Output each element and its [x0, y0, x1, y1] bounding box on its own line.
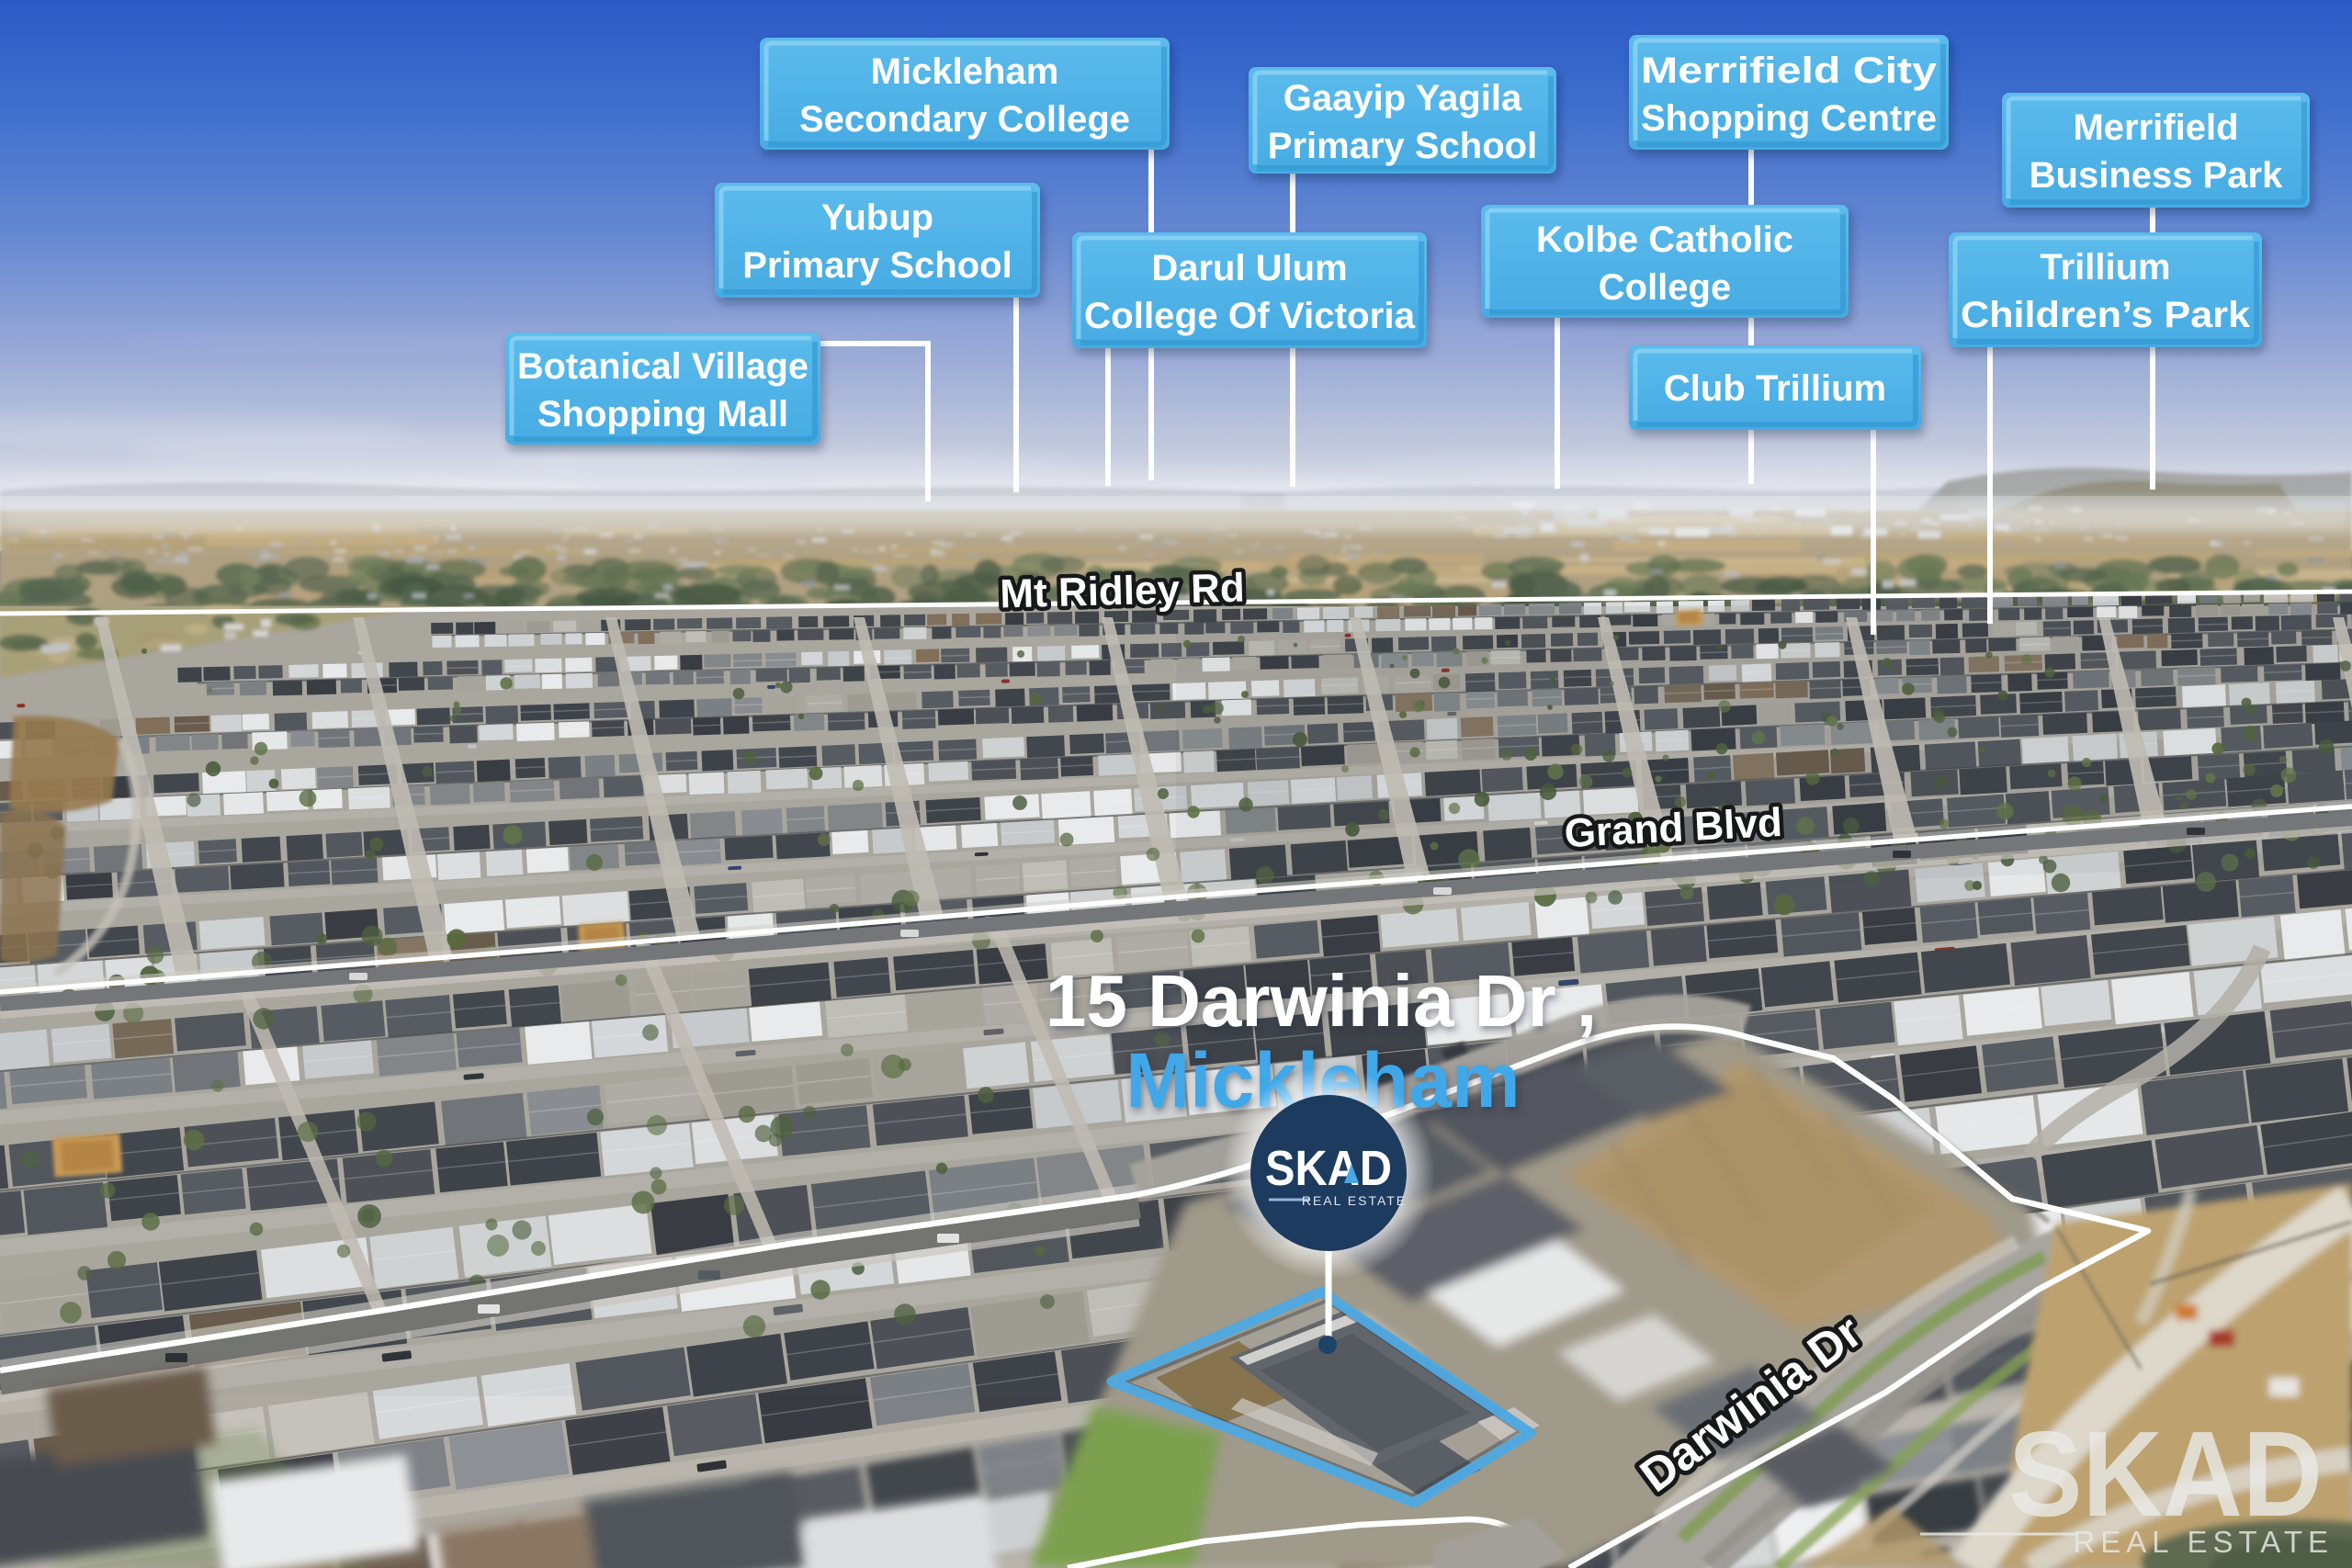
svg-text:College Of Victoria: College Of Victoria: [1084, 296, 1416, 336]
svg-text:Shopping Centre: Shopping Centre: [1641, 98, 1937, 139]
svg-text:Trillium: Trillium: [2040, 247, 2170, 288]
svg-text:Club Trillium: Club Trillium: [1664, 368, 1886, 409]
svg-text:SKAD: SKAD: [1265, 1141, 1392, 1196]
svg-text:Gaayip Yagila: Gaayip Yagila: [1283, 78, 1522, 118]
svg-text:Primary School: Primary School: [742, 245, 1012, 286]
svg-text:Mickleham: Mickleham: [871, 51, 1059, 92]
svg-text:Kolbe Catholic: Kolbe Catholic: [1536, 220, 1793, 260]
svg-text:Merrifield: Merrifield: [2073, 107, 2238, 148]
svg-text:Shopping Mall: Shopping Mall: [537, 394, 788, 434]
svg-text:15 Darwinia Dr ,: 15 Darwinia Dr ,: [1046, 960, 1597, 1042]
svg-text:Botanical Village: Botanical Village: [517, 346, 808, 387]
svg-text:Merrifield City: Merrifield City: [1641, 51, 1938, 91]
svg-text:Yubup: Yubup: [821, 197, 933, 238]
svg-text:Darul Ulum: Darul Ulum: [1151, 248, 1347, 288]
svg-text:SKAD: SKAD: [2008, 1406, 2323, 1541]
svg-text:Primary School: Primary School: [1268, 126, 1537, 166]
svg-text:Children’s Park: Children’s Park: [1961, 295, 2251, 335]
svg-text:REAL ESTATE: REAL ESTATE: [2073, 1525, 2334, 1559]
svg-text:REAL ESTATE: REAL ESTATE: [1302, 1193, 1407, 1208]
svg-text:Secondary College: Secondary College: [799, 99, 1130, 140]
svg-text:Mt Ridley Rd: Mt Ridley Rd: [1000, 566, 1246, 617]
svg-text:Business Park: Business Park: [2030, 155, 2283, 196]
svg-text:College: College: [1599, 267, 1731, 308]
